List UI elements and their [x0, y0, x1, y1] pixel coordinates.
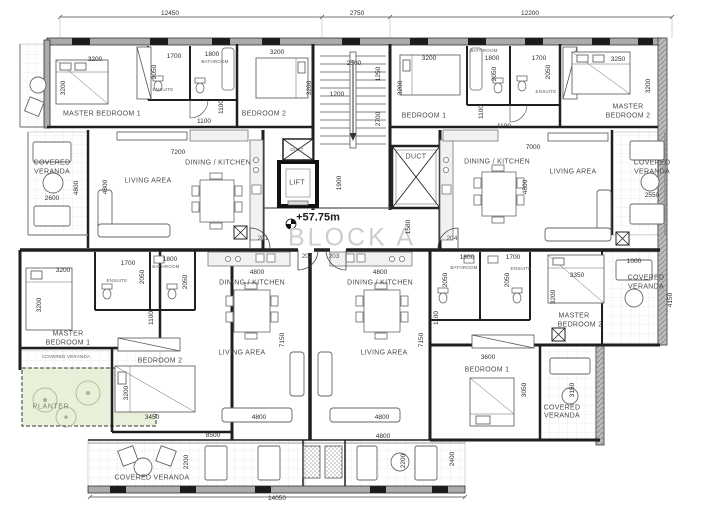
labels-layer: 124502750122003200320017001800BATHROOM20… [0, 0, 705, 508]
room-label: COVERED [34, 160, 71, 167]
room-label-small: ENSUITE [153, 88, 174, 93]
room-label: BEDROOM 2 [138, 358, 183, 365]
room-label-small: ENSUITE [536, 90, 557, 95]
dimension-label: 2050 [546, 65, 553, 79]
room-label: MASTER BEDROOM 1 [63, 111, 141, 118]
dimension-label: 7200 [171, 150, 185, 157]
dimension-label: 3150 [570, 383, 577, 397]
dimension-label: 1800 [205, 52, 219, 59]
dimension-label: 1800 [485, 56, 499, 63]
dimension-label: 14050 [268, 496, 286, 503]
room-label: LIVING AREA [125, 178, 172, 185]
dimension-label: 2050 [492, 67, 499, 81]
dimension-label: 2700 [376, 112, 383, 126]
dimension-label: 8500 [206, 433, 220, 440]
level-annotation: +57.75m [296, 213, 340, 224]
dimension-label: 4800 [103, 180, 110, 194]
room-label-small: BATHROOM [152, 265, 179, 270]
room-label-small: ENSUITE [107, 279, 128, 284]
dimension-label: 2750 [350, 11, 364, 18]
dimension-label: 1700 [167, 54, 181, 61]
dimension-label: 1580 [406, 220, 413, 234]
dimension-label: 3200 [56, 268, 70, 275]
dimension-label: 1700 [532, 56, 546, 63]
room-label-small: DUCT [290, 148, 303, 153]
dimension-label: 1800 [163, 257, 177, 264]
dimension-label: 2200 [401, 454, 408, 468]
dimension-label: 4800 [252, 415, 266, 422]
dimension-label: 1000 [627, 259, 641, 266]
dimension-label: 1700 [121, 261, 135, 268]
planter-label: PLANTER [33, 404, 70, 411]
room-label: VERANDA [634, 169, 670, 176]
room-label: VERANDA [628, 284, 664, 291]
dimension-label: 7000 [526, 145, 540, 152]
dimension-label: 3350 [570, 273, 584, 280]
dimension-label: 1100 [497, 124, 511, 131]
dimension-label: 3600 [481, 355, 495, 362]
room-label-small: ENSUITE [511, 267, 532, 272]
room-label: BEDROOM 2 [242, 111, 287, 118]
room-label: MASTER [53, 331, 84, 338]
room-label: LIVING AREA [550, 169, 597, 176]
dimension-label: 1100 [434, 311, 441, 325]
room-label: LIVING AREA [219, 350, 266, 357]
dimension-label: 2050 [152, 65, 159, 79]
dimension-label: 12200 [521, 11, 539, 18]
room-label: COVERED [628, 275, 665, 282]
unit-number: 204 [447, 236, 458, 243]
dimension-label: 3200 [37, 298, 44, 312]
room-label: LIVING AREA [361, 350, 408, 357]
dimension-label: 3200 [551, 290, 558, 304]
room-label: BEDROOM 1 [402, 113, 447, 120]
room-label: BEDROOM 1 [46, 340, 91, 347]
dimension-label: 1700 [506, 255, 520, 262]
dimension-label: 7150 [419, 333, 426, 347]
dimension-label: 3200 [398, 81, 405, 95]
dimension-label: 2200 [184, 455, 191, 469]
dimension-label: 2400 [450, 452, 457, 466]
floor-plan: 124502750122003200320017001800BATHROOM20… [0, 0, 705, 508]
room-label: COVERED VERANDA [115, 475, 190, 482]
dimension-label: 4800 [373, 270, 387, 277]
block-title: BLOCK A [288, 226, 416, 251]
room-label: BEDROOM 2 [558, 322, 603, 329]
dimension-label: 4800 [250, 270, 264, 277]
dimension-label: 2500 [347, 61, 361, 68]
room-label: BEDROOM 1 [465, 367, 510, 374]
room-label: MASTER [559, 313, 590, 320]
dimension-label: 4800 [523, 180, 530, 194]
dimension-label: 1100 [479, 105, 486, 119]
dimension-label: 4800 [74, 181, 81, 195]
dimension-label: 1200 [330, 92, 344, 99]
room-label: MASTER [613, 104, 644, 111]
dimension-label: 3250 [611, 57, 625, 64]
room-label-small: BATHROOM [201, 60, 228, 65]
dimension-label: 4800 [376, 434, 390, 441]
dimension-label: 1100 [197, 119, 211, 126]
dimension-label: 2600 [45, 196, 59, 203]
dimension-label: 3200 [270, 50, 284, 57]
room-label: DINING / KITCHEN [464, 159, 530, 166]
dimension-label: 4800 [375, 415, 389, 422]
room-label: VERANDA [544, 413, 580, 420]
room-label: COVERED [544, 405, 581, 412]
room-label-small: COVERED VERANDA [42, 355, 90, 360]
dimension-label: 3200 [88, 57, 102, 64]
dimension-label: 3200 [61, 81, 68, 95]
dimension-label: 3050 [522, 383, 529, 397]
room-label-small: BATHROOM [470, 49, 497, 54]
room-label: DINING / KITCHEN [347, 280, 413, 287]
dimension-label: 3200 [422, 56, 436, 63]
unit-number: 201 [258, 236, 269, 243]
dimension-label: 2050 [443, 273, 450, 287]
dimension-label: 3200 [646, 79, 653, 93]
dimension-label: 1250 [376, 67, 383, 81]
dimension-label: 2050 [140, 270, 147, 284]
unit-number: 202 [302, 254, 313, 261]
dimension-label: 1800 [460, 255, 474, 262]
dimension-label: 2050 [505, 273, 512, 287]
dimension-label: 2550 [645, 193, 659, 200]
dimension-label: 3200 [124, 386, 131, 400]
room-label-small: BATHROOM [450, 266, 477, 271]
room-label: BEDROOM 2 [606, 113, 651, 120]
room-label: DINING / KITCHEN [219, 280, 285, 287]
room-label: COVERED [634, 160, 671, 167]
dimension-label: 1100 [149, 311, 156, 325]
dimension-label: 1900 [337, 176, 344, 190]
dimension-label: 7150 [280, 333, 287, 347]
dimension-label: 3450 [145, 415, 159, 422]
dimension-label: 12450 [161, 11, 179, 18]
room-label: VERANDA [34, 169, 70, 176]
room-label: DINING / KITCHEN [185, 160, 251, 167]
dimension-label: 1100 [219, 100, 226, 114]
dimension-label: 3200 [307, 81, 314, 95]
dimension-label: 4150 [668, 293, 675, 307]
room-label: LIFT [289, 180, 305, 187]
room-label: DUCT [406, 154, 427, 161]
dimension-label: 2050 [183, 275, 190, 289]
unit-number: 203 [329, 254, 340, 261]
